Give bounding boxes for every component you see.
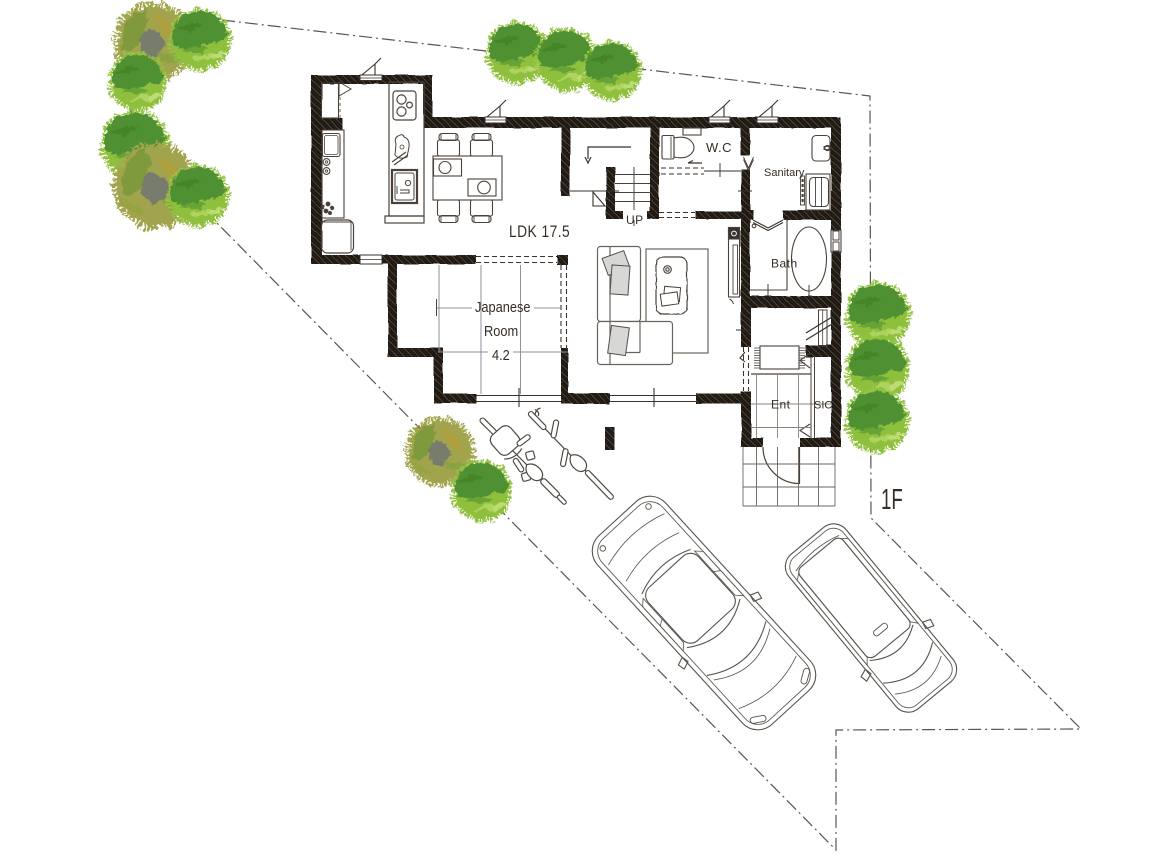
svg-text:Sanitary: Sanitary <box>764 167 805 179</box>
svg-text:Bath: Bath <box>771 257 798 271</box>
svg-text:Ent: Ent <box>771 398 791 412</box>
svg-text:LDK 17.5: LDK 17.5 <box>509 223 570 241</box>
svg-text:Japanese: Japanese <box>475 298 531 315</box>
svg-text:UP: UP <box>626 213 644 227</box>
svg-text:W.C: W.C <box>706 140 732 155</box>
svg-text:1F: 1F <box>881 484 903 516</box>
svg-text:Room: Room <box>484 322 518 339</box>
svg-text:SIC: SIC <box>814 400 832 412</box>
svg-text:4.2: 4.2 <box>492 346 510 363</box>
